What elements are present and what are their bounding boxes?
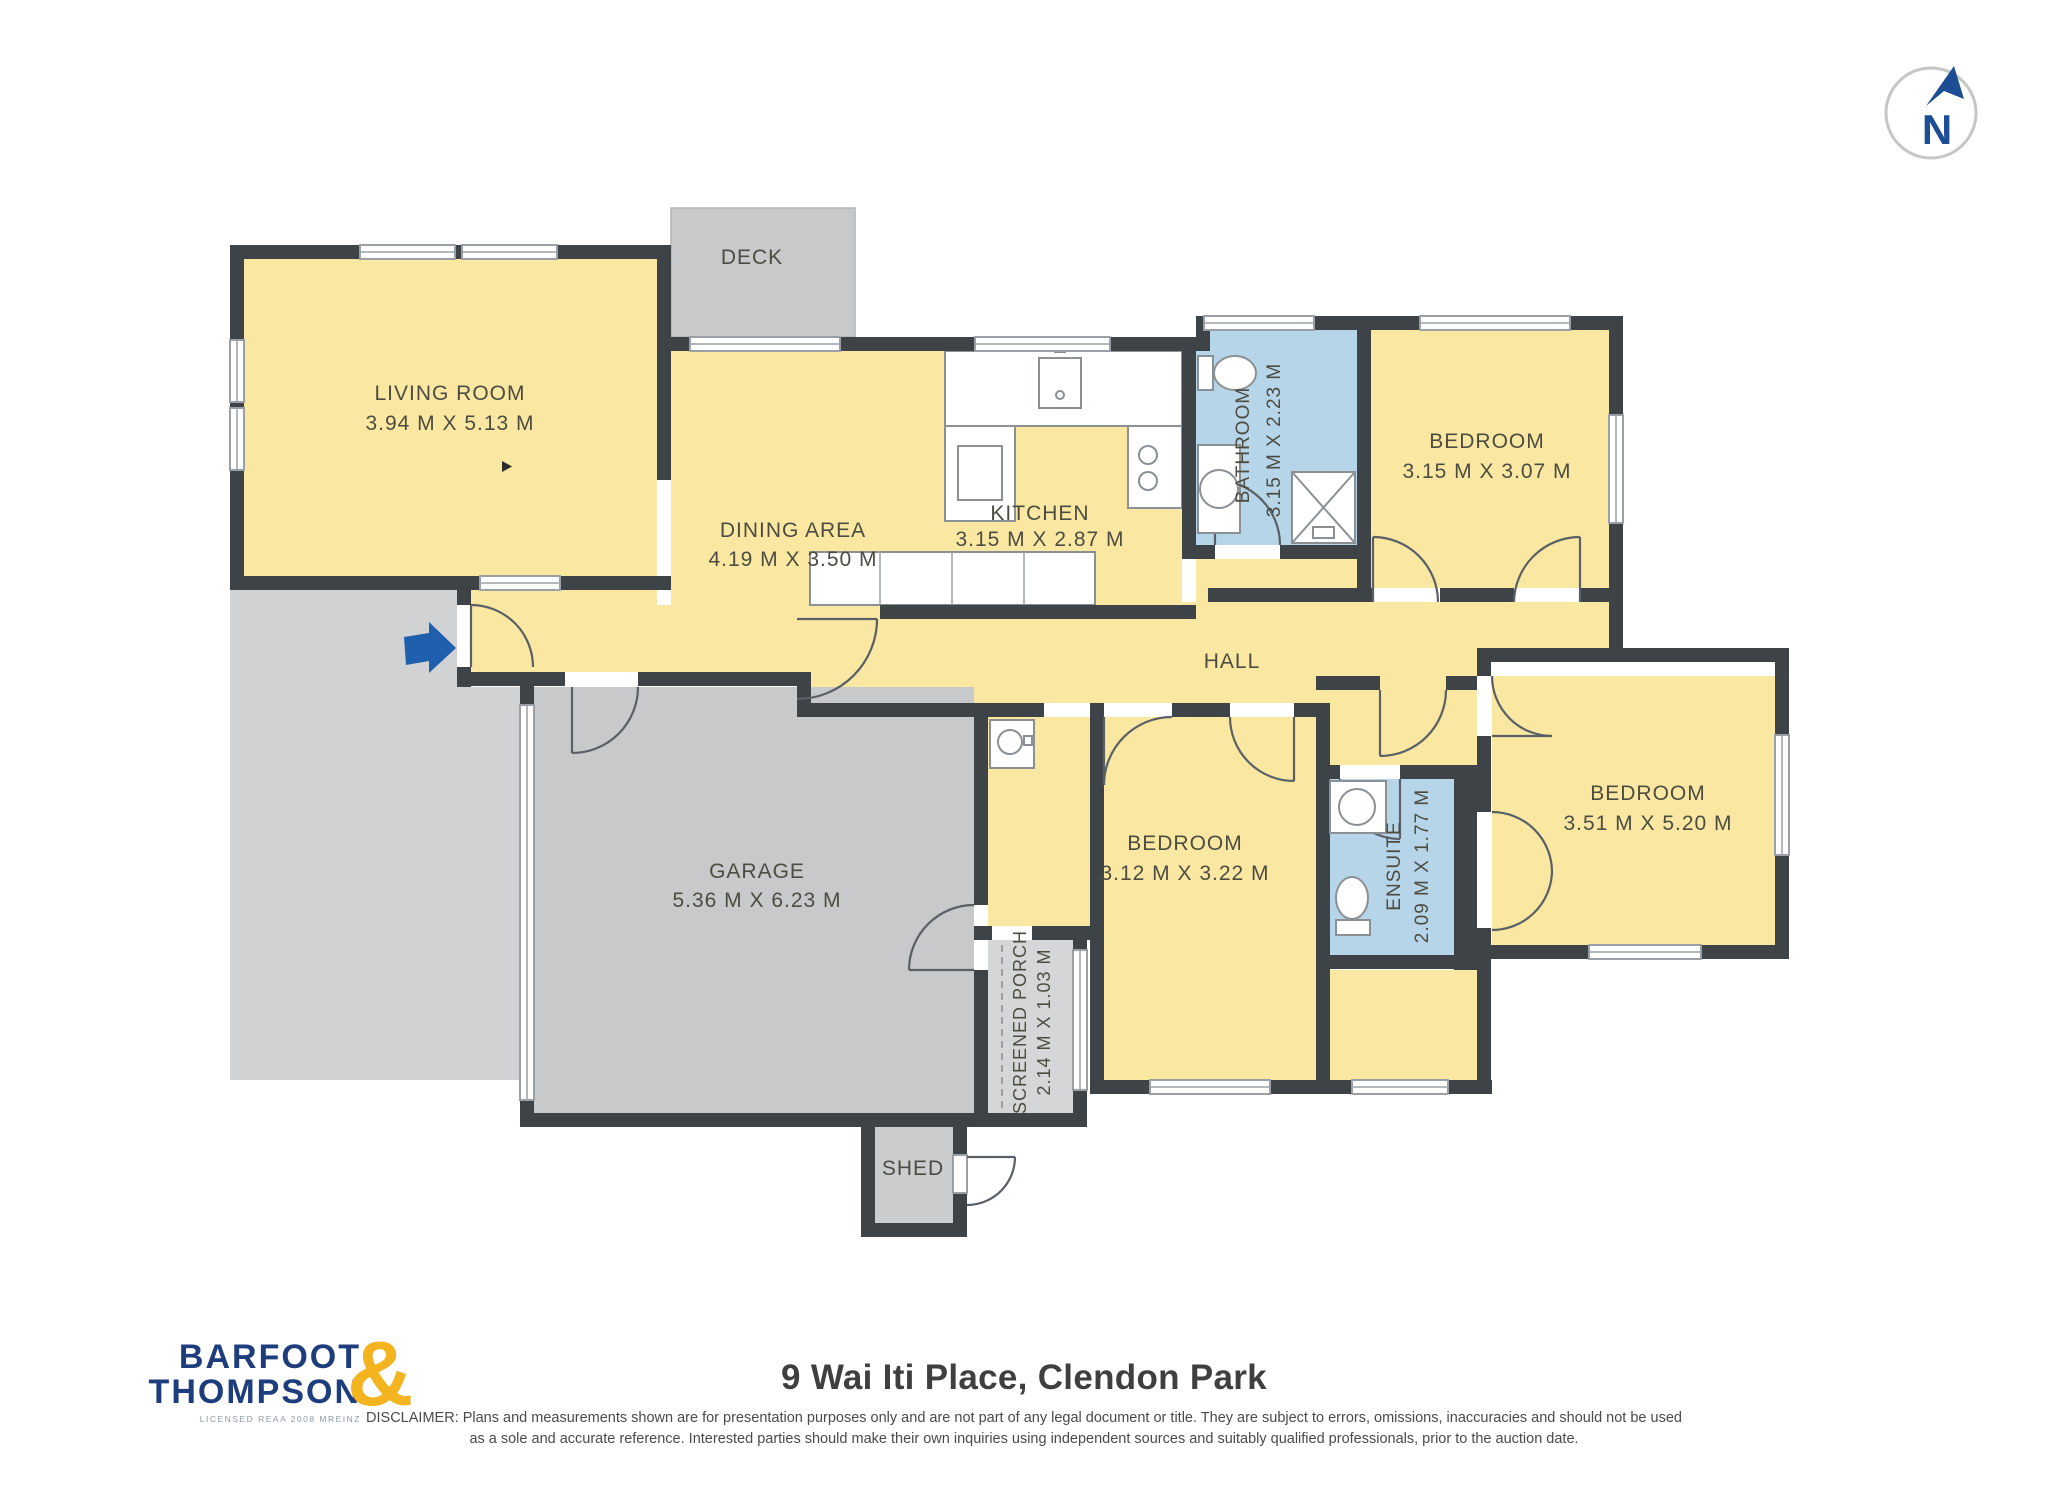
bathroom-dims: 3.15 M X 2.23 M — [1264, 363, 1285, 517]
disclaimer-line-2: as a sole and accurate reference. Intere… — [0, 1429, 2048, 1450]
shed-label: SHED — [882, 1157, 944, 1180]
compass: N — [1886, 66, 1976, 158]
kitchen-label: KITCHEN — [990, 502, 1089, 525]
under-ensuite-nook-fill — [1330, 970, 1477, 1080]
garage-label: GARAGE — [709, 860, 805, 883]
screened-porch-label: SCREENED PORCH — [1010, 930, 1030, 1114]
bedroom-right-dims: 3.51 M X 5.20 M — [1563, 812, 1732, 835]
hall-left-fill — [657, 605, 797, 672]
ensuite-dims: 2.09 M X 1.77 M — [1412, 789, 1433, 943]
bedroom-top-label: BEDROOM — [1429, 430, 1545, 453]
page-title: 9 Wai Iti Place, Clendon Park — [0, 1358, 2048, 1398]
screened-porch-fill — [988, 940, 1073, 1113]
deck-label: DECK — [721, 246, 783, 269]
bedroom-right-fill — [1492, 676, 1775, 945]
kitchen-dims: 3.15 M X 2.87 M — [955, 528, 1124, 551]
living-room-dims: 3.94 M X 5.13 M — [365, 412, 534, 435]
toilet-tank — [1198, 356, 1213, 390]
bedroom-mid-dims: 3.12 M X 3.22 M — [1100, 862, 1269, 885]
kitchen-counter-top — [945, 351, 1182, 426]
bedroom-right-label: BEDROOM — [1590, 782, 1706, 805]
shower-head — [1313, 527, 1334, 538]
ensuite-toilet-tank — [1336, 920, 1370, 935]
compass-letter: N — [1922, 106, 1952, 153]
kitchen-counter-right — [1128, 426, 1182, 508]
bathroom-label: BATHROOM — [1233, 387, 1254, 503]
garage-dims: 5.36 M X 6.23 M — [672, 889, 841, 912]
shed-door — [953, 1155, 967, 1193]
disclaimer-line-1: DISCLAIMER: Plans and measurements shown… — [0, 1408, 2048, 1429]
deck-fill — [671, 208, 855, 337]
bedroom-mid-label: BEDROOM — [1127, 832, 1243, 855]
neck-fill — [1477, 602, 1609, 648]
floor-plan-svg: LIVING ROOM 3.94 M X 5.13 M DECK DINING … — [0, 0, 2048, 1494]
bedroom-top-fill — [1371, 330, 1609, 588]
disclaimer: DISCLAIMER: Plans and measurements shown… — [0, 1408, 2048, 1450]
toilet-icon — [1214, 356, 1256, 390]
entry-nook-fill — [471, 590, 657, 672]
floor-plan-page: LIVING ROOM 3.94 M X 5.13 M DECK DINING … — [0, 0, 2048, 1494]
ensuite-toilet — [1336, 877, 1368, 919]
dining-area-dims: 4.19 M X 3.50 M — [708, 548, 877, 571]
ensuite-label: ENSUITE — [1384, 821, 1405, 910]
dining-area-label: DINING AREA — [720, 519, 866, 542]
screened-porch-dims: 2.14 M X 1.03 M — [1034, 948, 1054, 1095]
living-room-label: LIVING ROOM — [374, 382, 525, 405]
bedroom-mid-fill — [1104, 717, 1316, 1080]
bedroom-top-dims: 3.15 M X 3.07 M — [1402, 460, 1571, 483]
south-corridor-fill — [1330, 690, 1477, 765]
hall-label: HALL — [1204, 650, 1261, 673]
